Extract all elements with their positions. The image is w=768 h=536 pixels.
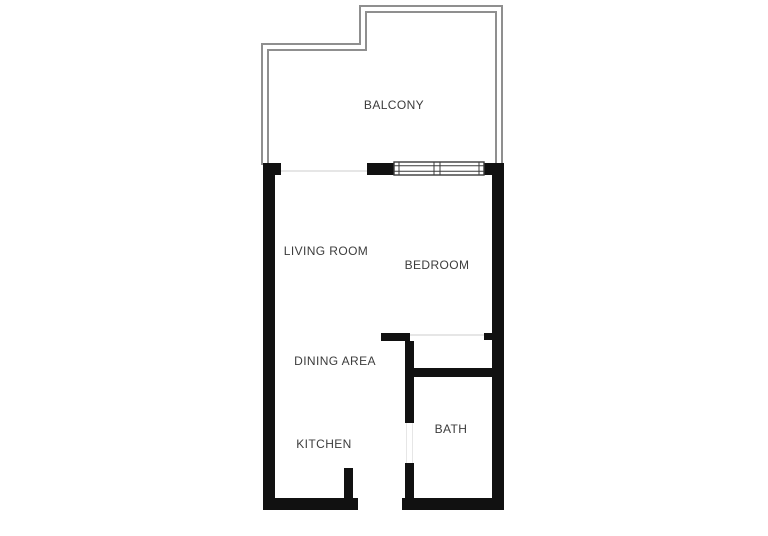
floor-plan-drawing: [0, 0, 768, 536]
kitchen-wall-stub: [344, 468, 353, 498]
wall-bottom-left: [263, 498, 358, 510]
wall-top-middle: [367, 163, 394, 175]
window-symbol: [394, 162, 484, 175]
wall-bottom-right: [402, 498, 504, 510]
floor-plan: BALCONY LIVING ROOM BEDROOM DINING AREA …: [0, 0, 768, 536]
bath-label: BATH: [435, 422, 468, 436]
living-room-label: LIVING ROOM: [284, 244, 368, 258]
bedroom-wall-stub: [484, 333, 492, 340]
bedroom-wall: [381, 333, 410, 341]
wall-left: [263, 163, 275, 510]
bath-wall-top: [405, 368, 504, 377]
dining-area-label: DINING AREA: [294, 354, 376, 368]
bath-wall-upper: [405, 341, 414, 423]
wall-right: [492, 163, 504, 510]
bath-wall-lower: [405, 463, 414, 498]
bedroom-label: BEDROOM: [405, 258, 470, 272]
wall-top-corner-left: [263, 163, 281, 175]
balcony-railing: [262, 6, 502, 165]
balcony-label: BALCONY: [364, 98, 424, 112]
wall-top-corner-right: [484, 163, 504, 175]
kitchen-label: KITCHEN: [296, 437, 351, 451]
bath-door-opening: [407, 423, 413, 463]
